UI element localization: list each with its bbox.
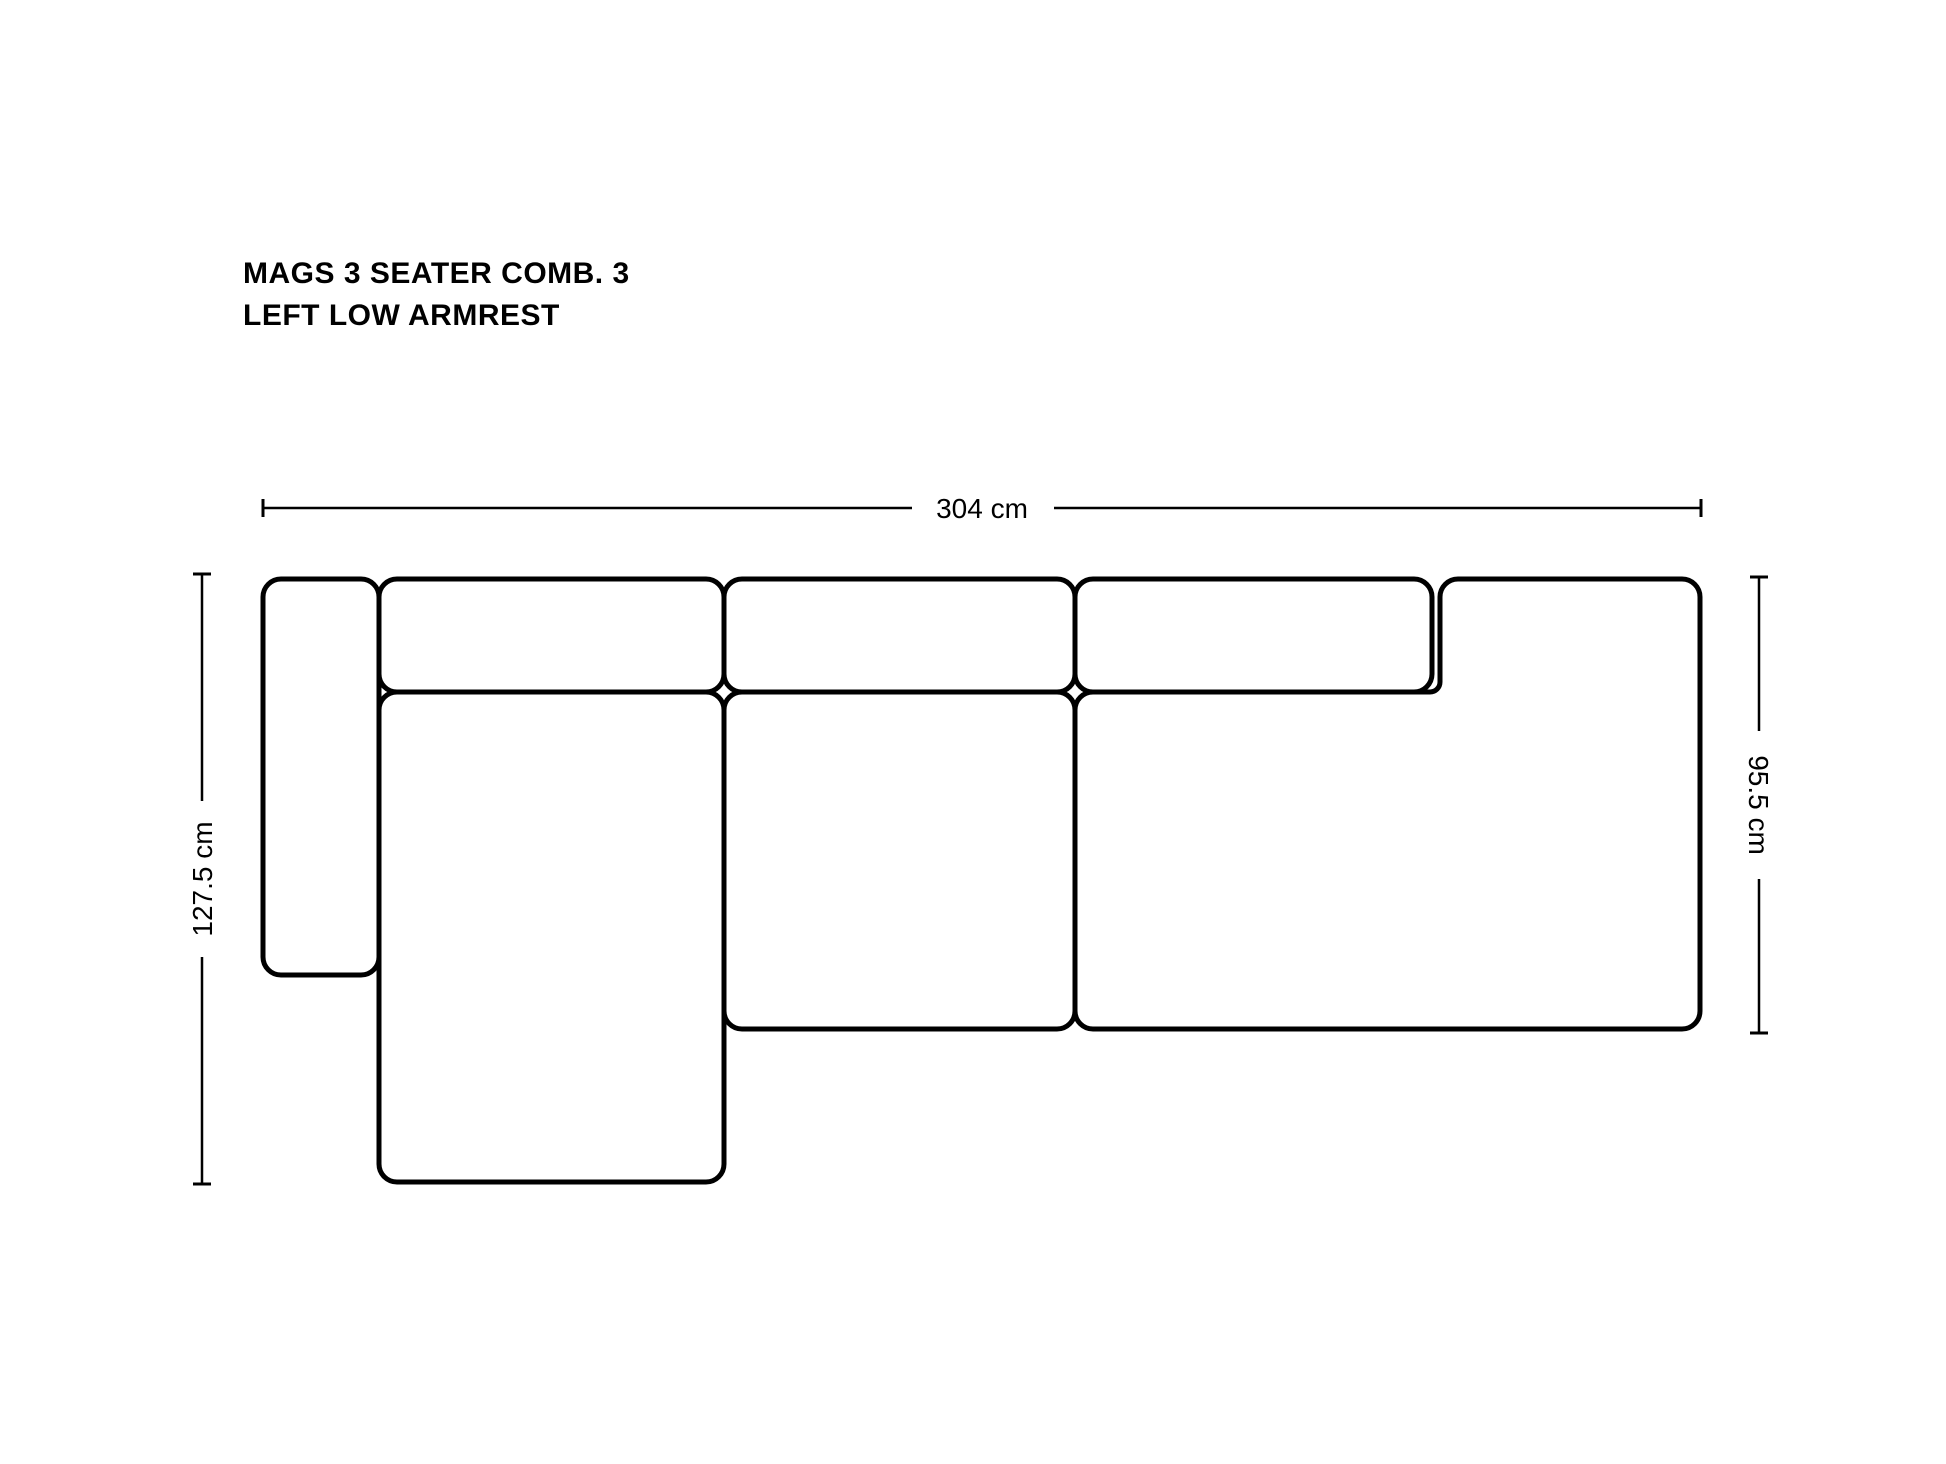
diagram-title: MAGS 3 SEATER COMB. 3 LEFT LOW ARMREST — [243, 257, 630, 332]
diagram-title-line2: LEFT LOW ARMREST — [243, 299, 560, 332]
chaise-seat-module — [379, 692, 724, 1182]
middle-seat-module — [724, 692, 1075, 1029]
width-dimension: 304 cm — [263, 493, 1701, 524]
back-cushion-left-module — [379, 579, 724, 692]
back-cushion-middle-module — [724, 579, 1075, 692]
sofa-dimension-diagram: MAGS 3 SEATER COMB. 3 LEFT LOW ARMREST 3… — [0, 0, 1946, 1464]
left-low-armrest-module — [263, 579, 379, 975]
sofa-outline — [263, 579, 1700, 1182]
back-cushion-right-module — [1075, 579, 1432, 692]
left-depth-dimension-label: 127.5 cm — [187, 821, 218, 936]
left-depth-dimension: 127.5 cm — [187, 574, 218, 1184]
width-dimension-label: 304 cm — [936, 493, 1028, 524]
diagram-title-line1: MAGS 3 SEATER COMB. 3 — [243, 257, 630, 290]
right-depth-dimension: 95.5 cm — [1743, 577, 1774, 1033]
sofa-dimension-diagram-page: MAGS 3 SEATER COMB. 3 LEFT LOW ARMREST 3… — [0, 0, 1946, 1464]
right-depth-dimension-label: 95.5 cm — [1743, 755, 1774, 855]
